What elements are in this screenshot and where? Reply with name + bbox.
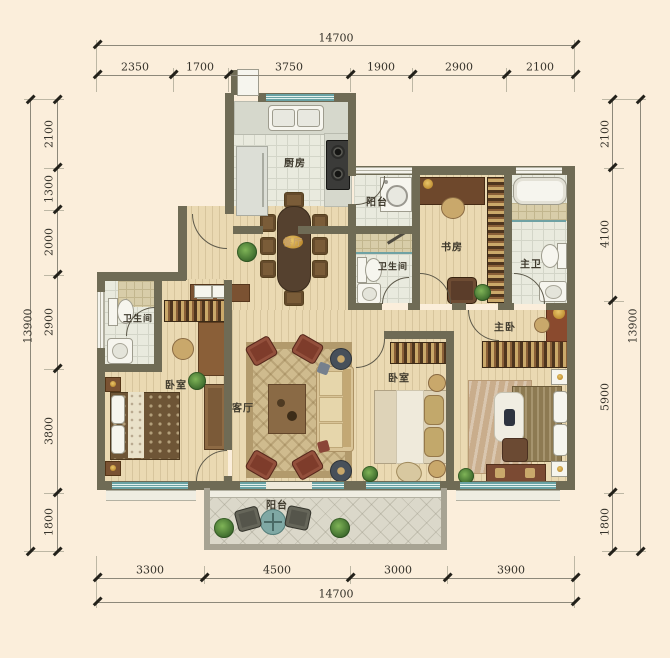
- dim-tick: [571, 572, 581, 582]
- dining-table: [277, 206, 311, 292]
- label-living: 客厅: [232, 400, 254, 415]
- coffee-table: [268, 384, 306, 434]
- ext-line: [96, 40, 97, 92]
- desk-lamp: [423, 179, 433, 189]
- patio-table: [260, 509, 286, 535]
- wall: [412, 166, 420, 310]
- ext-line: [574, 40, 575, 92]
- table-line: [264, 521, 282, 523]
- sofa-back: [343, 369, 351, 447]
- wardrobe: [204, 384, 226, 450]
- bedroom-mid-window: [366, 482, 440, 489]
- dim-line: [640, 100, 641, 552]
- pillow: [553, 424, 568, 456]
- side-table: [330, 460, 352, 482]
- fridge-handle: [262, 153, 264, 207]
- shower-glass: [354, 252, 414, 254]
- dim-tick: [571, 69, 581, 79]
- dim-label: 4100: [599, 220, 612, 248]
- chaise-item: [504, 409, 515, 426]
- toilet-bowl: [541, 244, 559, 268]
- label-master-bath: 主卫: [520, 256, 542, 271]
- side-table: [330, 348, 352, 370]
- pillow: [424, 427, 444, 457]
- sink-basin: [272, 109, 295, 127]
- living-window: [240, 482, 266, 489]
- stove: [326, 140, 350, 190]
- plant: [362, 466, 378, 482]
- wall: [546, 303, 575, 310]
- towel-rail: [512, 220, 566, 222]
- dim-label: 1900: [367, 61, 395, 74]
- desk-chair: [172, 338, 194, 360]
- dining-chair: [260, 237, 276, 255]
- dim-label: 3000: [384, 564, 412, 577]
- kitchen-sink: [268, 105, 324, 131]
- dining-chair: [284, 290, 304, 306]
- dim-label: 14700: [319, 32, 354, 45]
- wall: [348, 204, 356, 310]
- master-wardrobe-shelf: [482, 341, 568, 368]
- wall: [225, 93, 234, 214]
- label-bath-left: 卫生间: [123, 312, 153, 325]
- dim-label: 2100: [43, 120, 56, 148]
- dim-tick: [571, 39, 581, 49]
- plant: [474, 284, 491, 301]
- label-balcony-top: 阳台: [366, 194, 388, 209]
- dim-label: 2000: [43, 228, 56, 256]
- dim-label: 1800: [43, 508, 56, 536]
- dim-label: 2100: [599, 120, 612, 148]
- master-bedroom-window: [460, 482, 556, 489]
- dim-label: 14700: [319, 588, 354, 601]
- plant: [214, 518, 234, 538]
- ottoman: [502, 438, 528, 462]
- bed-runner: [128, 392, 144, 458]
- kitchen-window: [266, 94, 334, 101]
- patio-chair: [284, 505, 312, 532]
- bedroom-left-window: [112, 482, 188, 489]
- window-sill: [456, 490, 560, 501]
- balcony-wall: [204, 544, 447, 550]
- bench-pillow: [525, 468, 535, 478]
- pillow: [553, 391, 568, 423]
- sink-basin: [545, 285, 562, 299]
- nightstand: [105, 461, 121, 476]
- ext-line: [604, 301, 624, 302]
- dim-line: [97, 45, 575, 46]
- burner: [331, 167, 345, 181]
- ext-line: [604, 168, 624, 169]
- label-dining: 餐厅: [283, 236, 303, 249]
- wall: [384, 331, 448, 339]
- label-bedroom-left: 卧室: [165, 377, 187, 392]
- balcony-sill: [210, 490, 441, 498]
- wall: [154, 272, 162, 372]
- living-window: [312, 482, 344, 489]
- dim-label: 13900: [22, 309, 35, 344]
- dim-label: 1800: [599, 508, 612, 536]
- table-decor: [277, 399, 285, 407]
- pillow: [111, 395, 125, 424]
- dim-tick: [571, 596, 581, 606]
- dim-label: 13900: [627, 309, 640, 344]
- label-kitchen: 厨房: [284, 155, 306, 170]
- wall: [452, 303, 466, 310]
- dim-label: 3900: [497, 564, 525, 577]
- burner: [331, 145, 345, 159]
- label-balcony-bottom: 阳台: [266, 497, 288, 512]
- label-bedroom-mid: 卧室: [388, 370, 410, 385]
- lamp: [557, 466, 563, 472]
- bed-runner: [396, 390, 424, 464]
- dim-label: 3300: [136, 564, 164, 577]
- shelf-box: [194, 285, 212, 298]
- dim-label: 3800: [43, 417, 56, 445]
- dim-label: 2100: [526, 61, 554, 74]
- dim-line: [97, 602, 575, 603]
- wall: [498, 303, 514, 310]
- wall: [97, 272, 186, 281]
- bathtub: [513, 177, 567, 205]
- bookshelf: [164, 300, 228, 322]
- window-sill: [106, 490, 196, 501]
- pillow: [424, 395, 444, 425]
- label-bath-mid: 卫生间: [378, 260, 408, 273]
- entry-door-leaf: [237, 69, 259, 96]
- plant: [188, 372, 206, 390]
- dim-label: 2900: [43, 308, 56, 336]
- wall: [348, 303, 382, 310]
- table-decor: [287, 411, 297, 421]
- dim-label: 4500: [263, 564, 291, 577]
- sink-basin: [112, 343, 128, 359]
- wall: [354, 226, 414, 234]
- dim-label: 2900: [445, 61, 473, 74]
- floor-plan: 厨房 餐厅 阳台 卫生间 书房 主卫 卫生间 主卧 卧室 卧室 客厅 阳台 14…: [0, 0, 670, 658]
- sink-basin: [297, 109, 320, 127]
- pouf: [428, 460, 446, 478]
- lamp: [557, 374, 563, 380]
- dim-label: 1700: [186, 61, 214, 74]
- bathroom-sink: [107, 338, 133, 364]
- wall: [348, 93, 356, 176]
- wall: [178, 206, 187, 280]
- bench: [486, 464, 546, 482]
- wall-stub: [298, 226, 350, 234]
- balcony-door-threshold: [266, 482, 312, 489]
- wall: [224, 280, 232, 450]
- dining-chair: [312, 237, 328, 255]
- master-bath-window: [516, 167, 562, 174]
- wall: [504, 166, 512, 310]
- pouf: [428, 374, 446, 392]
- wall: [97, 364, 162, 372]
- chaise-chair: [494, 392, 524, 442]
- fridge: [236, 146, 268, 216]
- sofa-cushion: [319, 397, 343, 422]
- plant: [237, 242, 257, 262]
- label-master-bedroom: 主卧: [494, 319, 516, 334]
- balcony-top-window: [356, 167, 412, 174]
- washer-drum: [386, 185, 408, 207]
- sofa-cushion: [319, 371, 343, 396]
- bath-left-window: [97, 292, 105, 348]
- lamp: [110, 465, 116, 471]
- plant: [330, 518, 350, 538]
- lamp: [110, 381, 116, 387]
- dim-line: [97, 578, 575, 579]
- dining-chair: [312, 260, 328, 278]
- dining-chair: [260, 260, 276, 278]
- nightstand: [105, 377, 121, 392]
- dim-label: 3750: [275, 61, 303, 74]
- bathroom-sink: [357, 283, 381, 304]
- wall: [446, 331, 454, 483]
- bench-pillow: [495, 468, 505, 478]
- bookshelf: [390, 342, 448, 364]
- sink-basin: [362, 287, 377, 301]
- sofa: [316, 366, 354, 452]
- wall: [408, 303, 420, 310]
- wall: [567, 166, 575, 490]
- label-study: 书房: [441, 239, 463, 254]
- dim-label: 2350: [121, 61, 149, 74]
- masterbath-tile: [510, 203, 567, 221]
- shower-area: [354, 232, 414, 252]
- study-armchair: [447, 277, 477, 304]
- dressing-stool: [534, 317, 550, 333]
- study-chair: [441, 197, 465, 219]
- dim-label: 5900: [599, 383, 612, 411]
- ext-line: [604, 493, 624, 494]
- wall-stub: [233, 226, 263, 234]
- pillow: [111, 425, 125, 454]
- dim-label: 1300: [43, 175, 56, 203]
- balcony-wall: [441, 488, 447, 550]
